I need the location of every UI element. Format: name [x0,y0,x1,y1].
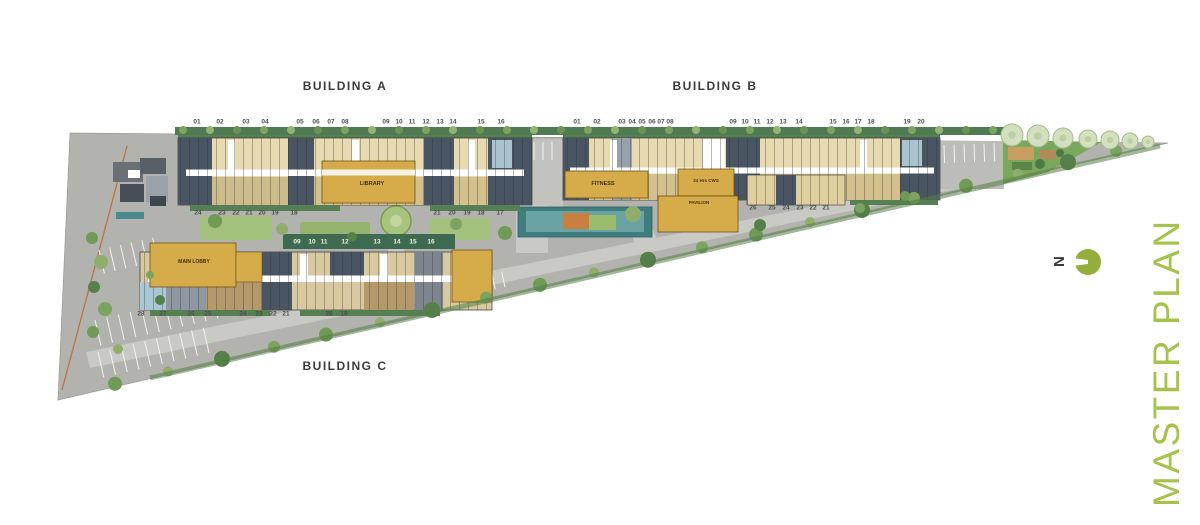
unit-number: 10 [395,119,402,126]
unit-number: 07 [327,119,334,126]
unit-number: 20 [258,210,265,217]
main-lobby-label: MAIN LOBBY [160,260,228,266]
master-plan-canvas: BUILDING A BUILDING B BUILDING C LIBRARY… [0,0,1200,525]
unit-number: 22 [269,311,276,318]
unit-number: 25 [768,205,775,212]
unit-number: 24 [194,210,201,217]
unit-number: 24 [782,205,789,212]
unit-number: 19 [903,119,910,126]
unit-number: 09 [729,119,736,126]
unit-number: 14 [393,239,400,246]
unit-number: 20 [917,119,924,126]
unit-number: 01 [193,119,200,126]
unit-number: 02 [216,119,223,126]
unit-number: 11 [409,119,416,126]
north-label: N [1050,256,1067,267]
master-plan-title: MASTER PLAN [1146,218,1188,507]
unit-number: 12 [341,239,348,246]
unit-number: 26 [749,205,756,212]
unit-number: 19 [340,311,347,318]
unit-number: 21 [822,205,829,212]
north-arrow [1072,249,1101,275]
unit-number: 19 [463,210,470,217]
unit-number: 18 [867,119,874,126]
unit-number: 13 [779,119,786,126]
cws-label: 24 Hrs CWS [678,179,734,184]
unit-number: 18 [477,210,484,217]
unit-number: 03 [242,119,249,126]
building-a-label: BUILDING A [260,79,430,93]
unit-number: 20 [448,210,455,217]
unit-number: 19 [271,210,278,217]
unit-number: 10 [741,119,748,126]
unit-number: 22 [809,205,816,212]
unit-number: 01 [573,119,580,126]
unit-number: 16 [497,119,504,126]
unit-number: 11 [321,239,328,246]
fitness-label: FITNESS [572,181,634,187]
unit-number: 23 [255,311,262,318]
unit-number: 08 [341,119,348,126]
unit-number: 16 [842,119,849,126]
building-c-footprint [140,234,492,316]
unit-number: 13 [373,239,380,246]
top-hedge [175,126,1005,135]
unit-number: 21 [282,311,289,318]
unit-number: 27 [159,311,166,318]
unit-number: 12 [422,119,429,126]
unit-number: 22 [232,210,239,217]
unit-number: 06 [312,119,319,126]
unit-number: 18 [290,210,297,217]
unit-number: 07 [657,119,664,126]
unit-number: 15 [829,119,836,126]
unit-number: 21 [245,210,252,217]
unit-number: 08 [666,119,673,126]
unit-number: 14 [449,119,456,126]
unit-number: 24 [239,311,246,318]
unit-number: 09 [293,239,300,246]
unit-number: 05 [638,119,645,126]
unit-number: 26 [187,311,194,318]
pavilion-label: PAVILION [660,201,738,206]
library-label: LIBRARY [341,181,403,187]
unit-number: 17 [496,210,503,217]
unit-number: 13 [436,119,443,126]
unit-number: 17 [854,119,861,126]
unit-number: 06 [648,119,655,126]
building-b-label: BUILDING B [630,79,800,93]
building-a-footprint [178,130,532,211]
unit-number: 25 [204,311,211,318]
unit-number: 11 [754,119,761,126]
unit-number: 15 [409,239,416,246]
unit-number: 04 [628,119,635,126]
unit-number: 04 [261,119,268,126]
unit-number: 23 [218,210,225,217]
unit-number: 10 [308,239,315,246]
unit-number: 21 [433,210,440,217]
unit-number: 28 [137,311,144,318]
unit-number: 12 [766,119,773,126]
building-c-label: BUILDING C [260,359,430,373]
unit-number: 14 [795,119,802,126]
unit-number: 03 [618,119,625,126]
unit-number: 15 [477,119,484,126]
unit-number: 02 [593,119,600,126]
unit-number: 16 [427,239,434,246]
unit-number: 05 [296,119,303,126]
unit-number: 20 [325,311,332,318]
unit-number: 09 [382,119,389,126]
unit-number: 23 [796,205,803,212]
